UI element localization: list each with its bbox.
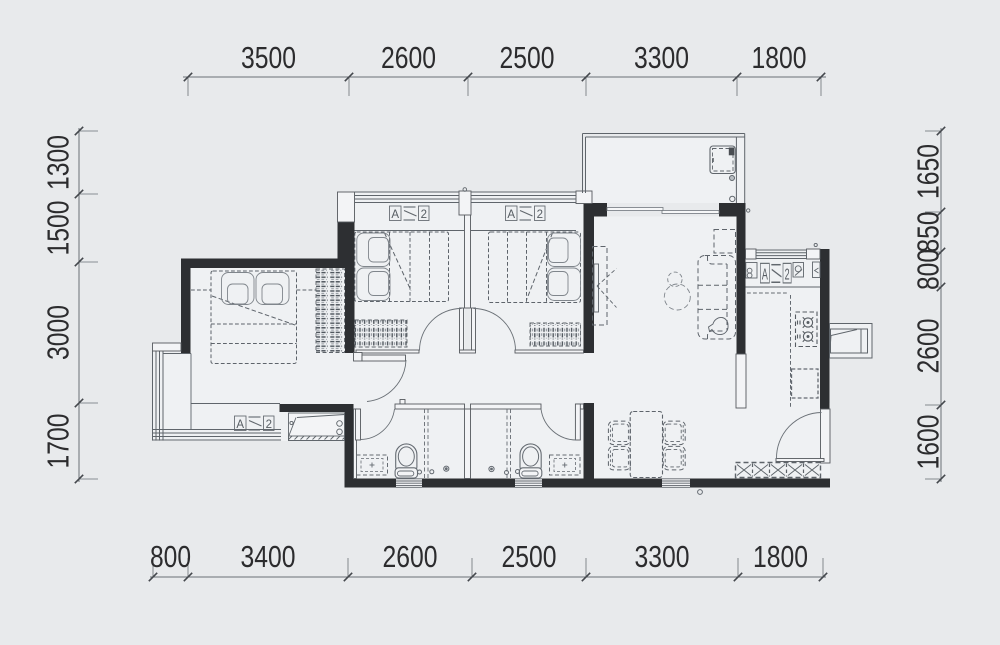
svg-text:2600: 2600	[381, 41, 436, 75]
svg-text:800: 800	[912, 249, 946, 290]
svg-text:1800: 1800	[753, 540, 808, 574]
svg-text:1700: 1700	[42, 414, 76, 469]
svg-text:2: 2	[266, 419, 272, 431]
svg-text:3000: 3000	[42, 305, 76, 360]
svg-text:2600: 2600	[383, 540, 438, 574]
svg-text:3400: 3400	[241, 540, 296, 574]
svg-text:A: A	[507, 209, 515, 221]
svg-text:3500: 3500	[241, 41, 296, 75]
svg-text:2: 2	[421, 209, 427, 221]
svg-text:3300: 3300	[635, 540, 690, 574]
svg-text:1650: 1650	[912, 144, 946, 199]
svg-text:2500: 2500	[502, 540, 557, 574]
svg-text:2: 2	[537, 209, 543, 221]
svg-text:850: 850	[912, 212, 946, 253]
svg-text:2: 2	[785, 266, 790, 283]
svg-text:1500: 1500	[42, 201, 76, 256]
svg-text:A: A	[236, 419, 244, 431]
svg-text:A: A	[762, 266, 768, 283]
svg-text:800: 800	[150, 540, 191, 574]
svg-text:2500: 2500	[500, 41, 555, 75]
svg-text:1800: 1800	[752, 41, 807, 75]
svg-text:2600: 2600	[912, 319, 946, 374]
svg-text:3300: 3300	[634, 41, 689, 75]
svg-text:1300: 1300	[42, 135, 76, 190]
svg-text:A: A	[391, 209, 399, 221]
svg-text:1600: 1600	[912, 415, 946, 470]
